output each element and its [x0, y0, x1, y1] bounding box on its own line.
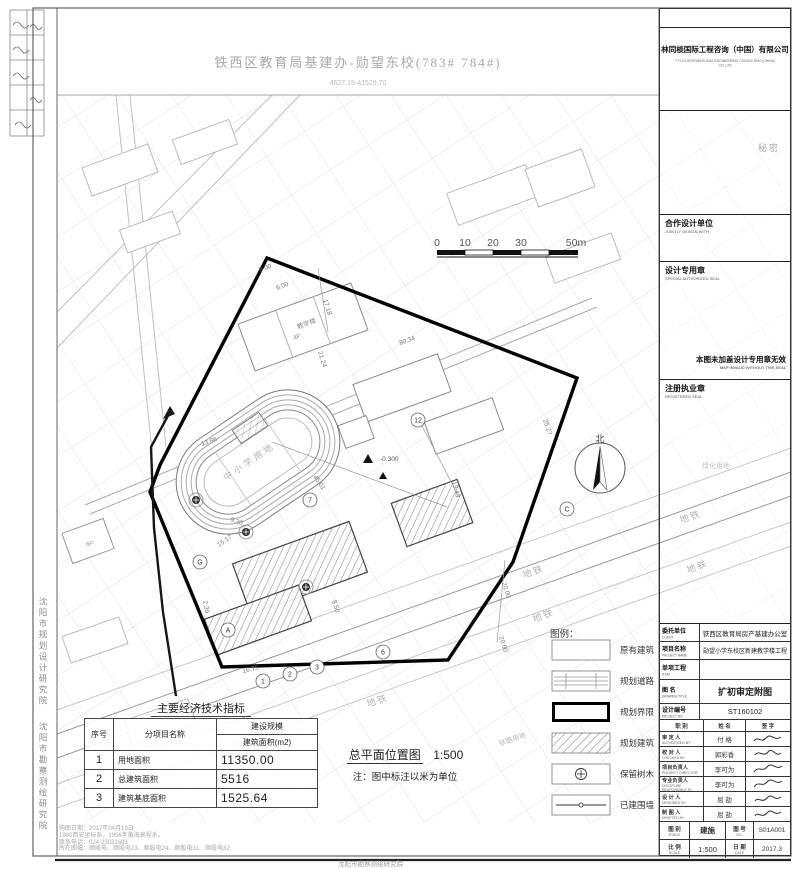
econ-value: 1525.64	[217, 789, 318, 808]
scale-tick: 50m	[566, 237, 587, 249]
grid-bubble: 3	[315, 665, 319, 672]
project-no-row: 设计编号PROJECT NO. ST160102	[660, 704, 790, 720]
sheet-coordinates: 4627.15-41529.70	[57, 80, 659, 87]
sheet-title: 铁西区教育局基建办-勋望东校(783# 784#)	[57, 52, 659, 71]
signer-row: 专业负责人DISCIPLINE RESPONSIBLE BY 李可为	[660, 777, 790, 792]
project-name-row: 项目名称PROJECT NAME 勋望小学东校区新建教学楼工程	[660, 642, 790, 660]
note-line: 购图日期：2017年04月19日	[59, 826, 319, 833]
econ-row: 1 用地面积 11350.00	[85, 751, 318, 770]
drawing-title-row: 图 名DRAWING TITLE 扩初审定附图	[660, 680, 790, 704]
signer-role: 审 定 人	[662, 734, 680, 741]
drawing-title-label: 图 名	[662, 685, 697, 694]
legend-item-label: 原有建筑	[620, 645, 655, 655]
approval-stamp-grid	[10, 10, 44, 136]
seal-invalid-en: MAP INVALID WITHOUT THIS SEAL	[664, 365, 786, 370]
signer-row: 审 定 人AUTHORIZED BY 付 格	[660, 732, 790, 747]
signer-name: 屈 劼	[704, 792, 746, 806]
scale-value: 1:500	[690, 840, 726, 858]
item-label-en: ITEM	[662, 672, 690, 676]
date-value: 2017.3	[754, 840, 790, 858]
legend-item-label: 规划界限	[620, 707, 655, 717]
date-label: 日 期	[733, 843, 746, 851]
position-header: 职 别	[675, 722, 688, 730]
legend-item-label: 规划建筑	[620, 738, 655, 748]
signer-row: 制 图 人DRAFTED BY 屈 劼	[660, 807, 790, 822]
econ-item: 用地面积	[114, 751, 217, 770]
stage-label-en: STAGE	[669, 833, 681, 837]
design-seal-label-en: SPECIAL AUTHORIZED SEAL	[665, 276, 785, 281]
scale-tick: 10	[459, 237, 471, 249]
stage-label: 图 别	[668, 825, 681, 833]
item-row: 单项工程ITEM	[660, 660, 790, 680]
col-scale: 建设规模	[217, 719, 318, 735]
registered-seal-section: 注册执业章 REGISTERED SEAL	[660, 379, 790, 402]
col-item: 分项目名称	[114, 719, 217, 751]
survey-credit: 沈阳市勘察测绘研究院	[338, 858, 403, 868]
grid-bubble: 1	[261, 679, 265, 686]
grid-bubble: G	[197, 560, 202, 567]
grid-bubble: 2	[288, 672, 292, 679]
signer-row: 项目负责人PROJECT DIRECTOR 李可为	[660, 762, 790, 777]
joint-design-label-en: JOINTLY DESIGN WITH	[665, 229, 785, 234]
scale-label: 比 例	[668, 843, 681, 851]
joint-design-section: 合作设计单位 JOINTLY DESIGN WITH	[660, 214, 790, 237]
name-header: 姓 名	[718, 722, 731, 730]
drawing-title-label-en: DRAWING TITLE	[662, 694, 690, 698]
date-label-en: DATE	[735, 851, 744, 855]
econ-row: 3 建筑基底面积 1525.64	[85, 789, 318, 808]
client-value: 铁西区教育局房产基建办公室	[700, 624, 790, 641]
legend-item-label: 已建围墙	[620, 800, 655, 810]
north-label: 北	[595, 434, 604, 444]
caption-note: 注：图中标注以米为单位	[300, 769, 510, 783]
registered-seal-label-en: REGISTERED SEAL	[665, 394, 785, 399]
seal-invalid-note: 本图未加盖设计专用章无效 MAP INVALID WITHOUT THIS SE…	[664, 354, 786, 370]
client-label-en: CLIENT	[662, 635, 690, 639]
signature-scribble	[753, 763, 783, 775]
signature-scribble	[753, 748, 783, 760]
project-no-value: ST160102	[700, 704, 790, 719]
signer-role: 专业负责人	[662, 777, 688, 784]
joint-design-label: 合作设计单位	[665, 218, 785, 229]
scale-tick: 0	[434, 237, 440, 249]
signer-role-en: AUTHORIZED BY	[662, 741, 690, 745]
col-no: 序号	[85, 719, 114, 751]
scale-tick: 30	[515, 237, 527, 249]
plan-caption: 总平面位置图 1:500 注：图中标注以米为单位	[300, 746, 510, 783]
econ-no: 2	[85, 770, 114, 789]
signer-name: 李可为	[704, 762, 746, 776]
legend-item-label: 规划道路	[620, 676, 655, 686]
signature-scribble	[753, 778, 783, 790]
signer-name: 付 格	[704, 732, 746, 746]
economic-indicators: 主要经济技术指标 序号 分项目名称 建设规模 建筑面积(m2) 1 用地面积 1…	[84, 700, 318, 808]
security-level: 秘密	[758, 141, 780, 154]
drawing-sheet: 北 0 10 20 30 50m 图例： 原	[0, 0, 800, 869]
signature-scribble	[753, 733, 783, 745]
signer-role: 项目负责人	[662, 764, 688, 771]
project-no-label: 设计编号	[662, 705, 697, 714]
signer-role: 设 计 人	[662, 794, 680, 801]
signer-name: 李可为	[704, 777, 746, 791]
caption-scale: 1:500	[433, 748, 463, 762]
institute-name-planning: 沈阳市规划设计研究院	[37, 597, 49, 707]
registered-seal-label: 注册执业章	[665, 383, 785, 394]
drawing-no-value: S01A001	[754, 822, 790, 839]
scale-tick: 20	[487, 237, 499, 249]
scale-label-en: SCALE	[669, 851, 680, 855]
economic-table: 序号 分项目名称 建设规模 建筑面积(m2) 1 用地面积 11350.00 2…	[84, 718, 318, 808]
note-line: 所在图幅：顺股电、顺股电23、顺股电24、顺股电31、顺股电32	[59, 846, 319, 853]
econ-item: 总建筑面积	[114, 770, 217, 789]
project-label-en: PROJECT NAME	[662, 653, 690, 657]
elevation-label: -0.300	[380, 456, 399, 463]
caption-title: 总平面位置图	[347, 748, 423, 764]
seal-invalid-cn: 本图未加盖设计专用章无效	[664, 354, 786, 365]
signer-name: 屈 劼	[704, 807, 746, 821]
grid-bubble: 7	[308, 498, 312, 505]
signer-header-row: 职 别 姓 名 签 字	[660, 720, 790, 732]
design-seal-section: 设计专用章 SPECIAL AUTHORIZED SEAL	[660, 261, 790, 284]
econ-no: 1	[85, 751, 114, 770]
design-seal-label: 设计专用章	[665, 265, 785, 276]
signature-header: 签 字	[762, 722, 775, 730]
econ-no: 3	[85, 789, 114, 808]
project-no-label-en: PROJECT NO.	[662, 714, 690, 718]
econ-item: 建筑基底面积	[114, 789, 217, 808]
building-label: 6F	[86, 542, 93, 548]
stage-row: 图 别STAGE 建施 图 号NO. S01A001	[660, 822, 790, 840]
signer-row: 设 计 人DESIGNED BY 屈 劼	[660, 792, 790, 807]
grid-bubble: 12	[414, 418, 422, 425]
drawing-no-label-en: NO.	[736, 833, 742, 837]
legend-title: 图例：	[550, 628, 579, 640]
grid-bubble: A	[226, 628, 231, 635]
title-block-table: 委托单位CLIENT 铁西区教育局房产基建办公室 项目名称PROJECT NAM…	[660, 623, 790, 855]
signer-role-en: DISCIPLINE RESPONSIBLE BY	[662, 784, 703, 792]
drawing-no-label: 图 号	[733, 825, 746, 833]
signer-role: 校 对 人	[662, 749, 680, 756]
company-block: 林同棪国际工程咨询（中国）有限公司 T.Y.LIN INTERNATIONAL …	[660, 27, 790, 111]
client-label: 委托单位	[662, 626, 697, 635]
institute-name-survey: 沈阳市勘察测绘研究院	[37, 722, 49, 832]
project-label: 项目名称	[662, 644, 697, 653]
stage-value: 建施	[690, 822, 726, 839]
signature-scribble	[753, 793, 783, 805]
legend-item-label: 保留树木	[620, 769, 655, 779]
signer-row: 校 对 人CHECKED BY 郭彩香	[660, 747, 790, 762]
signer-role-en: CHECKED BY	[662, 756, 685, 760]
company-name: 林同棪国际工程咨询（中国）有限公司	[660, 44, 790, 55]
note-line: 1980西安坐标系，1956年黄海高程系。	[59, 833, 319, 840]
project-value: 勋望小学东校区新建教学楼工程	[700, 642, 790, 659]
client-row: 委托单位CLIENT 铁西区教育局房产基建办公室	[660, 624, 790, 642]
grid-bubble: C	[564, 507, 569, 514]
scale-row: 比 例SCALE 1:500 日 期DATE 2017.3	[660, 840, 790, 858]
signer-role-en: DRAFTED BY	[662, 816, 684, 820]
company-name-en: T.Y.LIN INTERNATIONAL ENGINEERING CONSUL…	[670, 59, 781, 68]
title-block-panel: 林同棪国际工程咨询（中国）有限公司 T.Y.LIN INTERNATIONAL …	[659, 8, 791, 856]
signer-role-en: DESIGNED BY	[662, 801, 686, 805]
grid-bubble: 6	[381, 650, 385, 657]
signer-role-en: PROJECT DIRECTOR	[662, 771, 697, 775]
signer-role: 制 图 人	[662, 809, 680, 816]
signature-scribble	[753, 808, 783, 820]
drawing-title-value: 扩初审定附图	[700, 680, 790, 703]
economic-table-title: 主要经济技术指标	[84, 700, 318, 716]
item-value	[700, 660, 790, 679]
item-label: 单项工程	[662, 663, 697, 672]
econ-row: 2 总建筑面积 5516	[85, 770, 318, 789]
signer-name: 郭彩香	[704, 747, 746, 761]
survey-notes: 购图日期：2017年04月19日 1980西安坐标系，1956年黄海高程系。 联…	[59, 826, 319, 853]
